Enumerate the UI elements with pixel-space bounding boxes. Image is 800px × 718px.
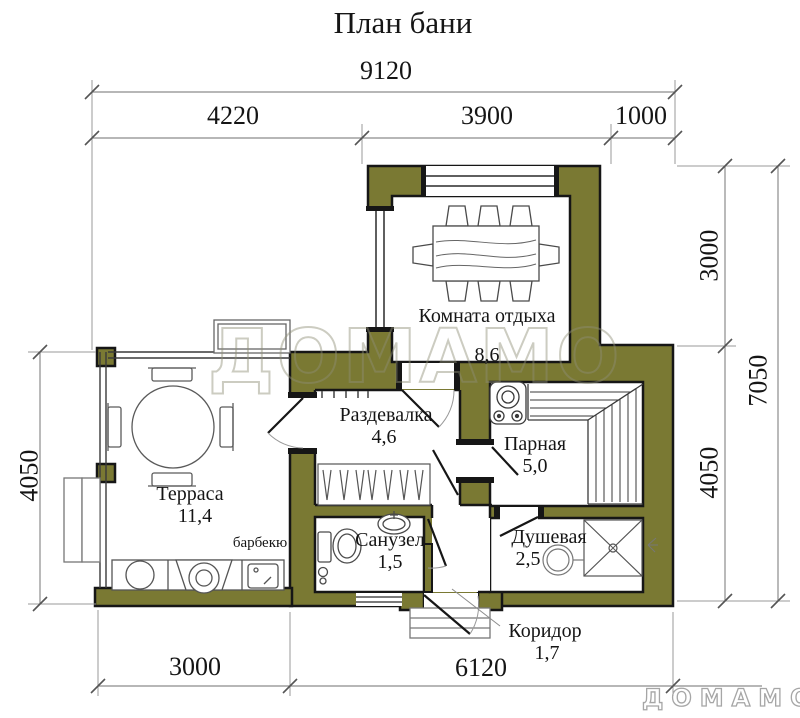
label-area-dressing: 4,6 (372, 427, 397, 448)
label-room-corridor: Коридор (508, 621, 581, 642)
label-room-steam: Парная (504, 434, 566, 455)
terrace-bottom-wall (95, 588, 292, 606)
dim-right-total: 7050 (723, 367, 793, 394)
terrace-round-table (132, 386, 214, 468)
window-wc-bottom (356, 593, 402, 606)
label-area-corridor: 1,7 (535, 643, 560, 664)
outside-bench-left (64, 478, 100, 562)
page-title: План бани (334, 7, 473, 40)
toilet-tank (318, 532, 331, 562)
dim-bottom-right: 6120 (455, 654, 507, 681)
label-barbecue: барбекю (233, 536, 287, 552)
dining-table (433, 226, 539, 281)
terrace-table-set (108, 368, 233, 486)
label-room-dressing: Раздевалка (339, 405, 432, 426)
label-room-terrace: Терраса (156, 484, 223, 505)
dim-top-seg2: 3900 (461, 102, 513, 129)
dim-right-lower: 4050 (674, 459, 744, 486)
terrace-railings (100, 352, 290, 588)
label-area-steam: 5,0 (523, 456, 548, 477)
label-room-rest: Комната отдыха (418, 306, 556, 327)
window-rest-left (366, 211, 394, 327)
terrace-steps-top (214, 320, 290, 353)
counter-burner (126, 561, 154, 589)
label-room-wc: Санузел (355, 530, 425, 551)
label-area-shower: 2,5 (516, 549, 541, 570)
room-corridor (432, 505, 490, 592)
sauna-stove (490, 382, 526, 424)
terrace-counter (112, 560, 284, 593)
dim-left-height: 4050 (0, 462, 64, 489)
label-area-rest: 8,6 (475, 345, 500, 366)
label-area-wc: 1,5 (378, 552, 403, 573)
dim-bottom-left: 3000 (169, 653, 221, 680)
label-area-terrace: 11,4 (178, 506, 212, 527)
label-room-shower: Душевая (511, 527, 586, 548)
dim-top-total: 9120 (360, 57, 412, 84)
dim-right-upper: 3000 (674, 242, 744, 269)
floor-plan-drawing (0, 0, 800, 718)
counter-sink (248, 564, 278, 588)
dim-top-seg1: 4220 (207, 102, 259, 129)
window-rest-top (426, 166, 554, 196)
floor-plan-page: ДОМАМО ДОМАМО План бани 9120 4220 3900 1… (0, 0, 800, 718)
dim-top-seg3: 1000 (615, 102, 667, 129)
coat-rack (318, 464, 430, 505)
